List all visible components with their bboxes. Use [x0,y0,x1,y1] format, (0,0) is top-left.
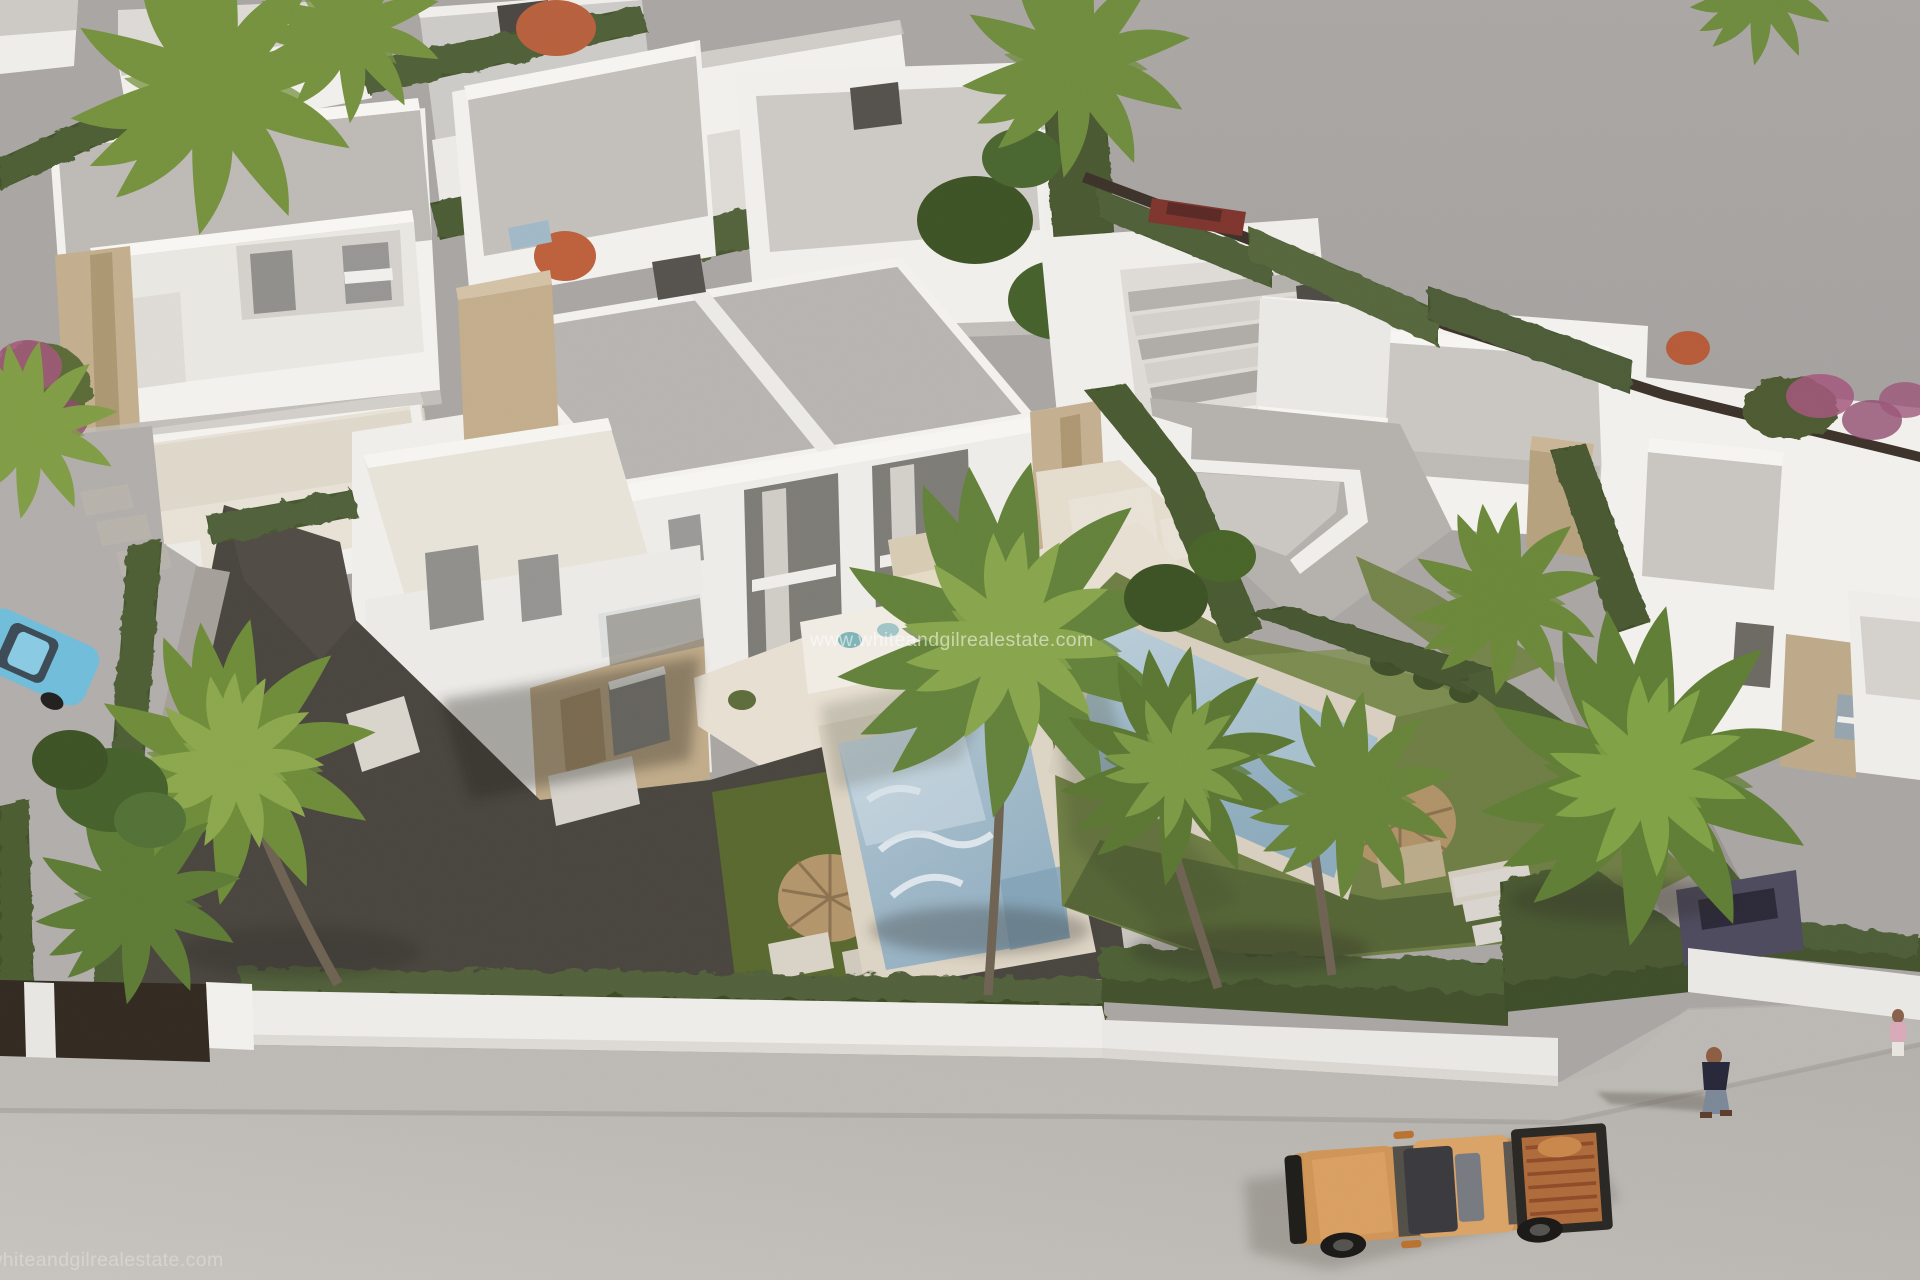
svg-text:www.whiteandgilrealestate.com: www.whiteandgilrealestate.com [809,629,1094,651]
svg-text:www.whiteandgilrealestate.com: www.whiteandgilrealestate.com [0,1249,224,1271]
